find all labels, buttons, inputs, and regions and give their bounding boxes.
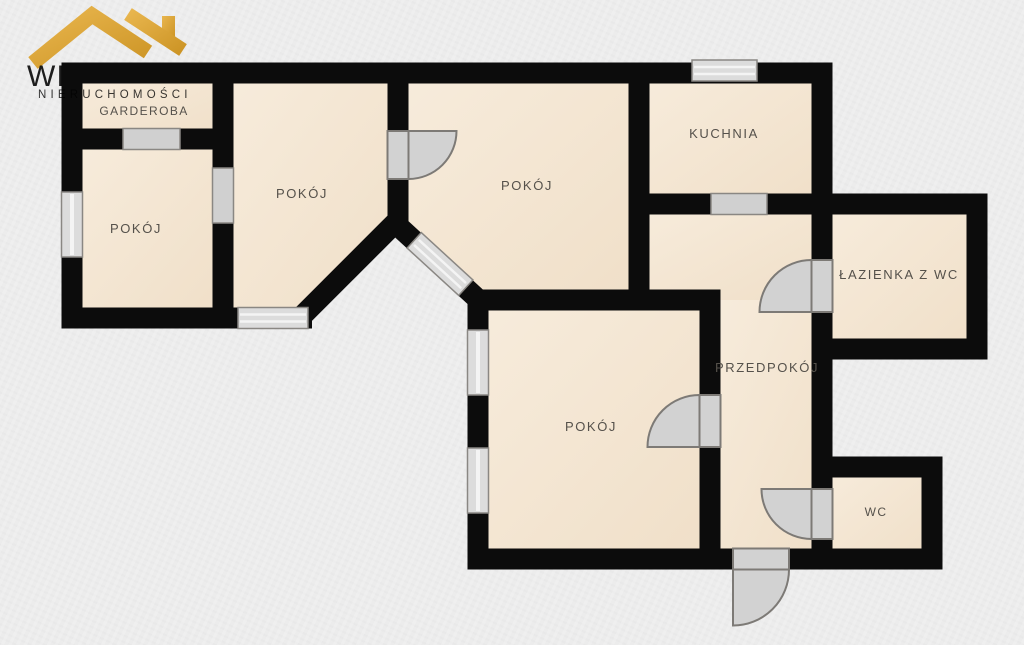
label-pokoj-2: POKÓJ [276,186,328,201]
opening-kuchnia [711,194,767,215]
label-wc: WC [865,505,888,519]
label-lazienka: ŁAZIENKA Z WC [839,267,959,282]
brand-tagline: NIERUCHOMOŚCI [38,88,192,101]
label-przedpokoj: PRZEDPOKÓJ [715,360,819,375]
label-pokoj-1: POKÓJ [110,221,162,236]
window-kuchnia-top [692,60,757,81]
opening-pokoj1-pokoj2 [213,168,234,223]
door-entrance [733,549,789,626]
window-pokoj2-bottom [238,308,308,329]
label-pokoj-3: POKÓJ [501,178,553,193]
gold-roof-icon [33,14,183,63]
window-pokoj4-left-lower [468,448,489,513]
label-kuchnia: KUCHNIA [689,126,759,141]
label-garderoba: GARDEROBA [99,104,188,118]
floor-plan: GARDEROBA POKÓJ POKÓJ POKÓJ KUCHNIA ŁAZI… [0,0,1024,645]
opening-garderoba [123,129,180,150]
label-pokoj-4: POKÓJ [565,419,617,434]
window-pokoj1-left [62,192,83,257]
window-pokoj4-left-upper [468,330,489,395]
page: { "brand": { "name_visible": "WI", "tagl… [0,0,1024,645]
